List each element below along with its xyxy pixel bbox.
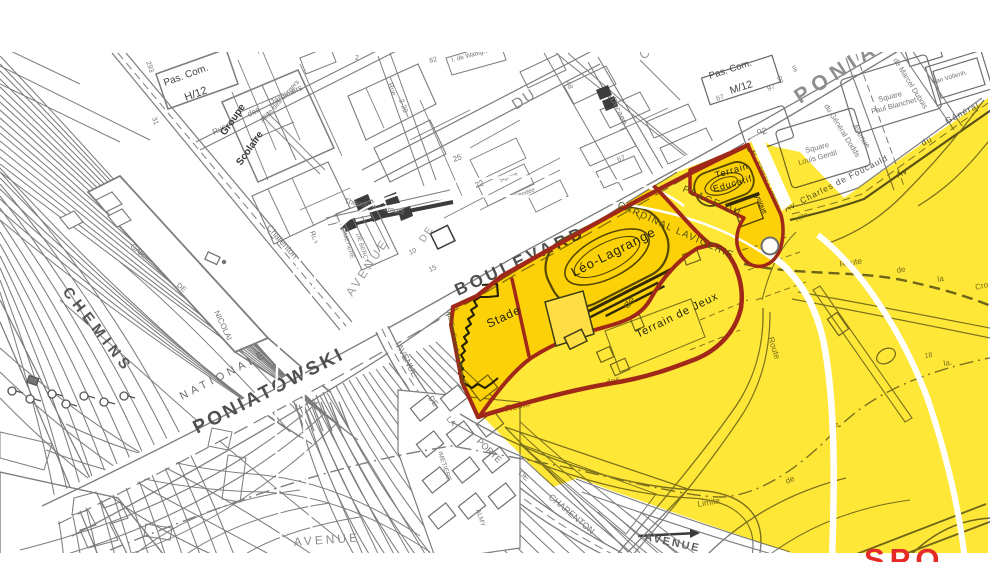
svg-text:2: 2: [355, 55, 359, 62]
svg-text:SPO: SPO: [864, 542, 944, 562]
